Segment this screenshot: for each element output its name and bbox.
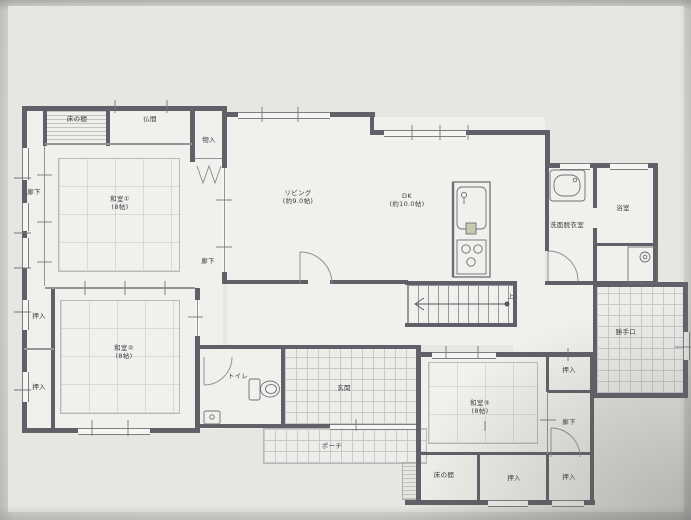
butsuma-label: 仏間 [143,116,157,124]
stairs-up-label: 上 [508,293,514,300]
washing-machine-icon [628,247,657,283]
washitsu2-name: 和室② [114,344,134,352]
senmen-label: 洗面脱衣室 [550,222,584,230]
tokonoma-top-label: 床の間 [67,116,87,124]
hand-basin-icon [204,411,220,424]
stairs-up-arrow [415,298,509,310]
washbasin-icon [550,170,585,201]
plan-symbols-overlay [0,0,691,520]
katteguchi-label: 勝手口 [616,329,636,337]
door-swing-arcs [204,251,580,457]
kitchen-counter-icon [453,182,490,277]
oshiire-left-top-label: 押入 [32,313,46,321]
stove-icon [457,240,486,274]
washitsu3-name: 和室③ [470,399,490,407]
toilet-icon [204,379,280,424]
porch-label: ポーチ [322,443,342,451]
living-size: (約9.0帖) [283,197,314,205]
oshiire-bottom-center-label: 押入 [507,475,521,483]
oshiire-right-top-label: 押入 [562,367,576,375]
rouka-right-label: 廊下 [562,419,576,427]
washitsu2-label: 和室② (8帖) [114,344,134,360]
rouka-left-label: 廊下 [27,189,41,197]
dk-name: DK [390,192,425,200]
faucet-icon [461,192,466,197]
dimension-tick-marks [14,100,691,436]
washitsu1-name: 和室① [110,195,130,203]
living-name: リビング [283,189,314,197]
washitsu3-label: 和室③ (8帖) [470,399,490,415]
folding-door-icon [197,166,221,183]
oshiire-right-bottom-label: 押入 [562,474,576,482]
living-label: リビング (約9.0帖) [283,189,314,205]
bath-label: 浴室 [616,205,630,213]
washitsu1-size: (8帖) [110,203,130,211]
dk-label: DK (約10.0帖) [390,192,425,208]
dk-size: (約10.0帖) [390,200,425,208]
rouka-mid-label: 廊下 [201,258,215,266]
washitsu3-size: (8帖) [470,407,490,415]
genkan-label: 玄関 [337,385,351,393]
toilet-label: トイレ [228,373,248,381]
floor-plan-photo: 床の間 仏間 物入 廊下 和室① (8帖) 廊下 リビング (約9.0帖) DK… [0,0,691,520]
washitsu2-size: (8帖) [114,352,134,360]
tokonoma-bottom-label: 床の間 [434,472,454,480]
monoire-label: 物入 [202,137,216,145]
oshiire-left-bottom-label: 押入 [32,384,46,392]
washitsu1-label: 和室① (8帖) [110,195,130,211]
